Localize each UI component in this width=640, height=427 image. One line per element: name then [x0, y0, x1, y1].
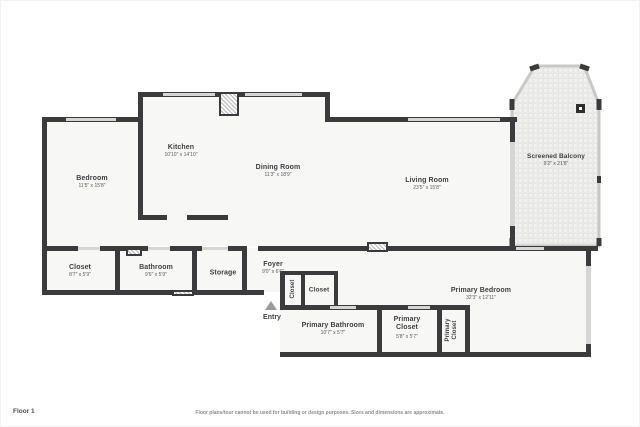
wall: [301, 271, 338, 275]
wall: [242, 246, 247, 295]
wall: [42, 117, 47, 295]
window: [163, 93, 215, 96]
room-label-closet: Closet8'7" x 5'9": [69, 264, 91, 278]
wall: [42, 246, 78, 251]
window: [66, 118, 116, 121]
room-label-bathroom: Bathroom9'6" x 5'9": [139, 264, 173, 278]
wall: [437, 305, 442, 357]
wall: [334, 271, 338, 309]
wall: [138, 92, 143, 220]
bathroom-tub: [172, 290, 194, 296]
wall: [510, 226, 515, 248]
window: [408, 118, 500, 121]
room-label-primary-closet: Primary Closet5'8" x 5'7": [389, 316, 425, 340]
floorplan-canvas: Bedroom11'5" x 15'8" Kitchen10'10" x 14'…: [0, 0, 640, 427]
disclaimer-text: Floor plans/tour cannot be used for buil…: [0, 410, 640, 416]
door-opening: [330, 306, 356, 309]
window: [245, 93, 302, 96]
wall: [258, 246, 598, 251]
room-label-primary-closet-vertical: Primary Closet: [445, 312, 459, 348]
door-opening: [148, 247, 170, 250]
wall: [170, 246, 202, 251]
room-label-hall-closet-vertical: Closet: [290, 280, 296, 299]
wall: [280, 271, 285, 309]
wall: [510, 117, 515, 142]
wall: [242, 290, 264, 295]
kitchen-chimney: [219, 92, 239, 116]
room-label-foyer: Foyer9'0" x 6'6": [262, 261, 284, 275]
fireplace: [367, 242, 388, 252]
room-label-screened-balcony: Screened Balcony9'2" x 21'8": [527, 153, 585, 167]
room-label-dining-room: Dining Room11'3" x 18'9": [256, 164, 301, 178]
door-opening: [408, 306, 430, 309]
wall: [140, 215, 167, 220]
wall: [377, 305, 382, 357]
wall: [192, 246, 197, 292]
room-label-living-room: Living Room23'5" x 15'8": [405, 177, 449, 191]
wall: [42, 290, 247, 295]
window: [586, 266, 591, 344]
window: [510, 142, 515, 226]
door-opening: [78, 247, 100, 250]
wall: [301, 271, 305, 309]
wall: [115, 246, 120, 292]
door-opening: [202, 247, 228, 250]
entry-arrow-icon: [265, 301, 277, 310]
room-label-primary-bathroom: Primary Bathroom10'7" x 5'7": [302, 322, 365, 336]
wall: [187, 215, 228, 220]
entry-label: Entry: [263, 314, 281, 321]
wall: [280, 352, 591, 357]
room-label-kitchen: Kitchen10'10" x 14'10": [165, 144, 198, 158]
room-label-storage: Storage: [210, 270, 237, 277]
room-floor-primary-suite: [280, 248, 590, 354]
room-floor-kitchen-dining: [140, 94, 330, 246]
wall: [465, 305, 470, 357]
room-label-bedroom: Bedroom11'5" x 15'8": [76, 175, 107, 189]
bathroom-sink: [126, 248, 142, 256]
door-opening: [516, 247, 544, 250]
room-label-hall-closet: Closet: [309, 287, 329, 294]
room-label-primary-bedroom: Primary Bedroom32'3" x 12'11": [451, 287, 511, 301]
